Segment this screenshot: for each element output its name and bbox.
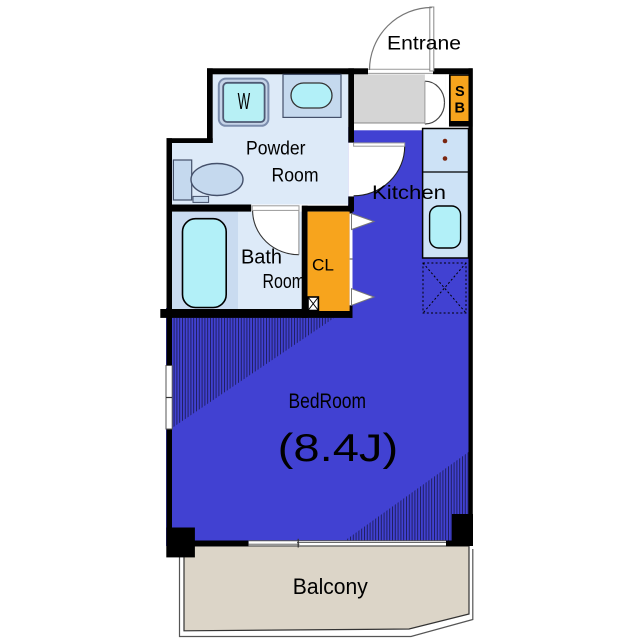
svg-text:Balcony: Balcony	[293, 574, 368, 599]
svg-text:CL: CL	[312, 257, 334, 275]
svg-text:Entrane: Entrane	[387, 33, 461, 55]
svg-text:B: B	[455, 101, 465, 117]
svg-text:Bath: Bath	[241, 247, 282, 269]
svg-text:Room: Room	[263, 271, 306, 293]
svg-text:(8.4J): (8.4J)	[278, 427, 399, 470]
svg-text:Powder: Powder	[246, 139, 306, 160]
svg-text:Room: Room	[272, 166, 319, 187]
svg-text:BedRoom: BedRoom	[289, 390, 367, 413]
svg-text:S: S	[455, 84, 465, 100]
svg-text:Kitchen: Kitchen	[372, 183, 446, 204]
svg-text:W: W	[238, 88, 251, 114]
